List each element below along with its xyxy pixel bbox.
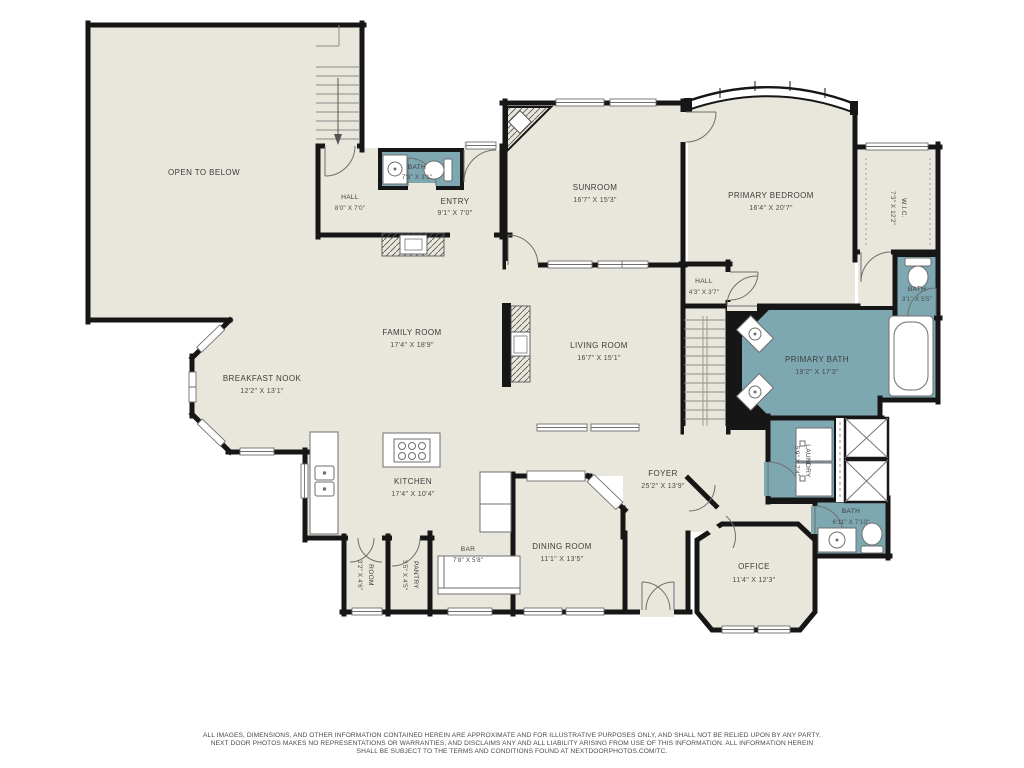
room-dims-foyer: 25'2" X 13'9" bbox=[641, 483, 685, 490]
room-label-primary-bedroom: PRIMARY BEDROOM bbox=[728, 191, 814, 200]
room-dims-office: 11'4" X 12'3" bbox=[733, 577, 776, 584]
room-label-family-room: FAMILY ROOM bbox=[382, 328, 441, 337]
room-label-office: OFFICE bbox=[738, 562, 770, 571]
room-label-room: ROOM bbox=[367, 564, 374, 586]
room-dims-bath-wic: 3'1" X 5'5" bbox=[902, 296, 932, 303]
room-dims-room: 3'2" X 4'6" bbox=[356, 560, 363, 590]
room-label-primary-bath: PRIMARY BATH bbox=[785, 355, 849, 364]
room-label-sunroom: SUNROOM bbox=[573, 183, 618, 192]
room-label-bath-entry: BATH bbox=[408, 164, 426, 171]
room-label-open-to-below: OPEN TO BELOW bbox=[168, 168, 240, 177]
disclaimer-line-2: NEXT DOOR PHOTOS MAKES NO REPRESENTATION… bbox=[211, 740, 814, 747]
room-label-laundry: LAUNDRY bbox=[804, 444, 811, 478]
room-dims-dining-room: 11'1" X 13'5" bbox=[541, 556, 584, 563]
room-dims-entry: 9'1" X 7'0" bbox=[437, 210, 472, 217]
room-dims-wic: 7'3" X 12'2" bbox=[889, 191, 896, 225]
disclaimer-line-3: SHALL BE SUBJECT TO THE TERMS AND CONDIT… bbox=[357, 748, 668, 755]
room-label-pantry: PANTRY bbox=[412, 561, 419, 589]
room-dims-breakfast-nook: 12'2" X 13'1" bbox=[240, 388, 284, 395]
room-label-entry: ENTRY bbox=[441, 197, 470, 206]
entry-cabinet bbox=[382, 233, 444, 256]
bath-office-fixtures bbox=[818, 523, 883, 553]
room-label-bath-wic: BATH bbox=[908, 286, 926, 293]
room-label-foyer: FOYER bbox=[648, 469, 678, 478]
floor-plan-drawing: OPEN TO BELOW HALL 8'0" X 7'0" BATH 7'3"… bbox=[0, 0, 1024, 768]
room-dims-living-room: 16'7" X 15'1" bbox=[577, 355, 621, 362]
room-label-hall: HALL bbox=[695, 278, 713, 285]
room-dims-bar: 7'8" X 5'8" bbox=[453, 557, 483, 564]
room-dims-laundry: 5'9" X 7'4" bbox=[793, 446, 800, 476]
room-dims-family-room: 17'4" X 18'9" bbox=[390, 342, 434, 349]
room-dims-bath-entry: 7'3" X 3'1" bbox=[402, 174, 432, 181]
fireplace-living bbox=[502, 303, 530, 387]
room-dims-kitchen: 17'4" X 10'4" bbox=[391, 491, 435, 498]
floor-plan-page: OPEN TO BELOW HALL 8'0" X 7'0" BATH 7'3"… bbox=[0, 0, 1024, 768]
room-label-bar: BAR bbox=[461, 546, 475, 553]
room-label-hall-upper: HALL bbox=[341, 194, 359, 201]
disclaimer: ALL IMAGES, DIMENSIONS, AND OTHER INFORM… bbox=[203, 732, 821, 755]
room-dims-sunroom: 16'7" X 15'3" bbox=[573, 197, 617, 204]
room-label-kitchen: KITCHEN bbox=[394, 477, 432, 486]
room-dims-primary-bath: 19'2" X 17'3" bbox=[795, 369, 839, 376]
room-label-wic: W.I.C. bbox=[900, 198, 907, 218]
room-dims-pantry: 3'5" X 4'5" bbox=[401, 560, 408, 590]
room-label-breakfast-nook: BREAKFAST NOOK bbox=[223, 374, 302, 383]
room-dims-bath-office: 6'11" X 7'10" bbox=[832, 519, 869, 526]
room-dims-hall-upper: 8'0" X 7'0" bbox=[335, 205, 365, 212]
room-label-bath-office: BATH bbox=[842, 508, 860, 515]
room-label-living-room: LIVING ROOM bbox=[570, 341, 628, 350]
room-dims-primary-bedroom: 16'4" X 20'7" bbox=[749, 205, 793, 212]
closets bbox=[836, 418, 888, 502]
disclaimer-line-1: ALL IMAGES, DIMENSIONS, AND OTHER INFORM… bbox=[203, 732, 821, 739]
room-dims-hall: 4'3" X 3'7" bbox=[689, 289, 719, 296]
room-label-dining-room: DINING ROOM bbox=[532, 542, 592, 551]
